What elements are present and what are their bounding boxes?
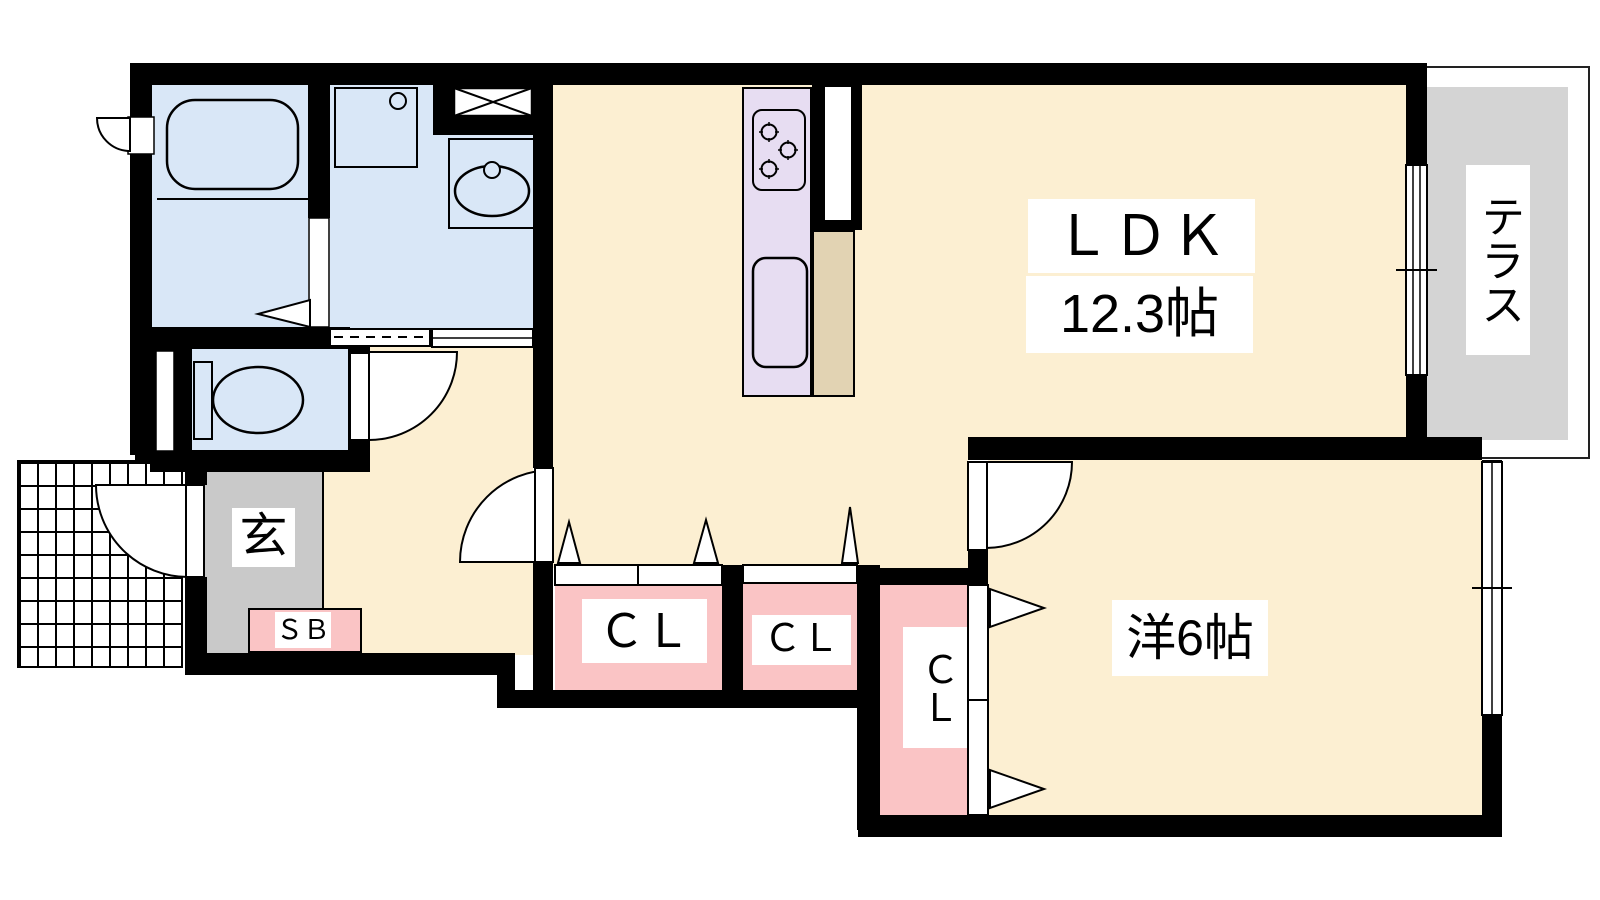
wall: [185, 653, 515, 675]
wall: [1482, 460, 1502, 837]
wall: [185, 472, 207, 485]
wall: [150, 450, 370, 472]
entrance-label: 玄: [232, 508, 295, 567]
kitchen-counter: [742, 87, 812, 397]
entrance-porch-tiles: [17, 460, 183, 668]
wall: [1406, 63, 1427, 440]
western-room-label: 洋6帖: [1112, 600, 1268, 676]
wall: [308, 85, 330, 218]
floor-plan: ＬＤＫ 12.3帖 洋6帖 テラス 玄 ＳＢ ＣＬ ＣＬ ＣＬ: [0, 0, 1600, 900]
wall: [968, 437, 1482, 460]
wall: [722, 565, 743, 690]
wall: [858, 815, 1502, 837]
wall: [533, 85, 553, 468]
closet2-label: ＣＬ: [752, 615, 851, 665]
terrace-label: テラス: [1466, 165, 1530, 355]
room-hallway-upper: [348, 345, 533, 455]
kitchen-counter-tan: [812, 230, 855, 397]
wall: [857, 565, 880, 830]
closet1-label: ＣＬ: [582, 599, 707, 663]
closet3-label: ＣＬ: [903, 627, 967, 748]
room-ldk: [553, 85, 1406, 437]
wall: [130, 327, 350, 349]
room-ldk-south: [553, 437, 968, 568]
wall: [497, 690, 880, 708]
room-bathroom: [152, 85, 308, 327]
wall: [812, 85, 862, 230]
wall: [130, 63, 1427, 85]
shoe-box-label: ＳＢ: [275, 612, 331, 648]
room-toilet: [192, 349, 348, 453]
wall: [322, 472, 324, 608]
ldk-label: ＬＤＫ: [1028, 199, 1255, 273]
wall: [433, 63, 533, 135]
wall: [968, 550, 988, 585]
wall: [130, 63, 152, 455]
ldk-size-label: 12.3帖: [1026, 276, 1253, 353]
wall: [185, 577, 207, 653]
wall: [533, 562, 553, 708]
